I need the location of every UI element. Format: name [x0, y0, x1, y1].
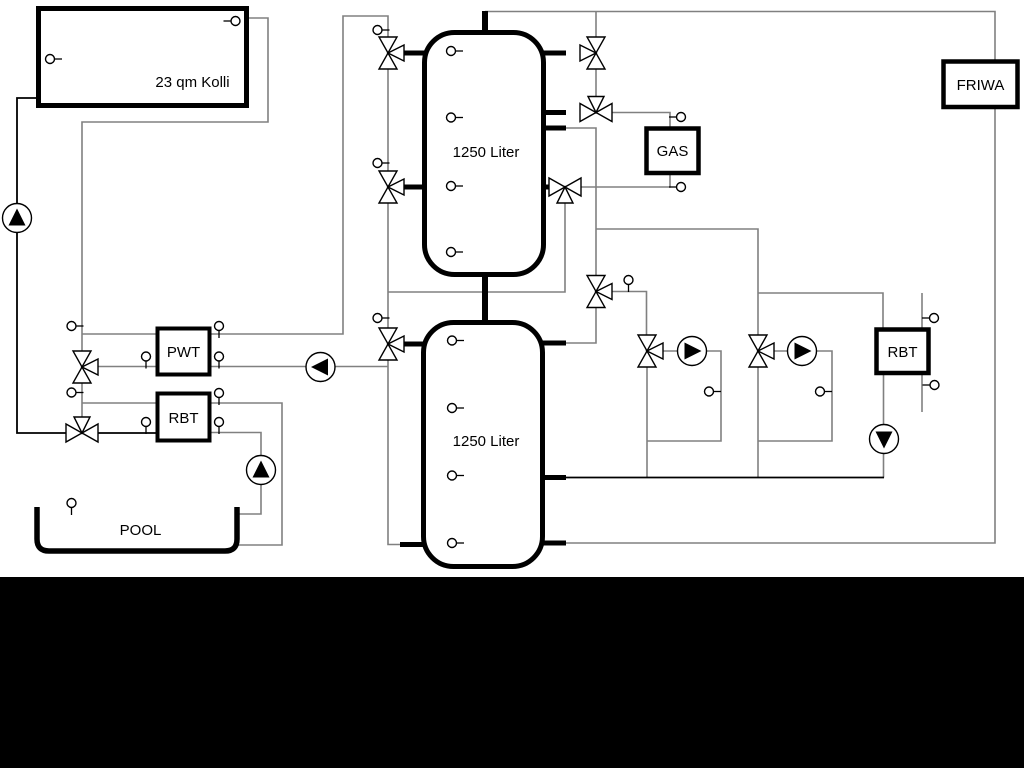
pump-icon-solar — [3, 204, 32, 233]
gas-label: GAS — [657, 143, 689, 160]
rbt-right-label: RBT — [888, 344, 918, 361]
pump-icon-circuit2 — [788, 337, 817, 366]
tank-top-label: 1250 Liter — [453, 144, 520, 161]
pwt-label: PWT — [167, 344, 200, 361]
hydraulic-diagram: 23 qm Kolli 1250 Liter 1250 Liter PWT RB… — [0, 0, 1024, 768]
bottom-black-bar — [0, 577, 1024, 768]
pump-icon-pwt-loading — [306, 353, 335, 382]
pump-icon-rbt-right — [870, 425, 899, 454]
rbt-left-label: RBT — [169, 410, 199, 427]
tank-bottom-label: 1250 Liter — [453, 433, 520, 450]
pump-icon-circuit1 — [678, 337, 707, 366]
pump-icon-pool — [247, 456, 276, 485]
collector-label: 23 qm Kolli — [155, 74, 229, 91]
pool-label: POOL — [120, 522, 162, 539]
friwa-label: FRIWA — [957, 77, 1005, 94]
schematic-canvas: 23 qm Kolli 1250 Liter 1250 Liter PWT RB… — [0, 0, 1024, 768]
